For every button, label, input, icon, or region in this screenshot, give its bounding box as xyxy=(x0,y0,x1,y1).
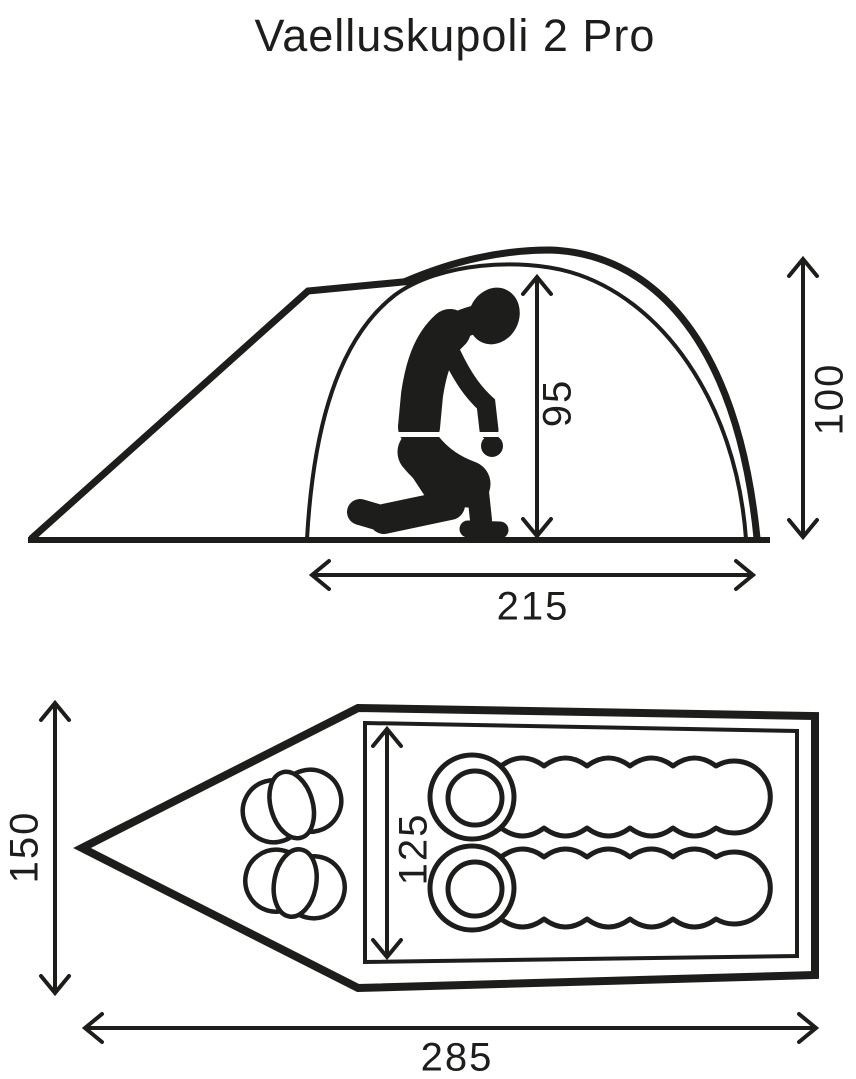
person-arm xyxy=(452,355,489,430)
person-hand xyxy=(481,435,503,457)
floorplan-outer-outline xyxy=(82,708,815,988)
sleeping-bag-opening xyxy=(448,771,502,825)
tent-side-view xyxy=(28,250,817,589)
person-front-foot xyxy=(468,529,500,530)
person-rear-foot xyxy=(360,512,384,519)
diagram-drawing xyxy=(0,0,856,1079)
sleeping-bag-top xyxy=(430,755,770,839)
outer-width-label: 150 xyxy=(3,811,48,884)
inner-width-label: 125 xyxy=(392,813,437,886)
inner-length-label: 215 xyxy=(497,585,570,630)
total-length-label: 285 xyxy=(421,1036,494,1079)
sleeping-bag-bottom xyxy=(430,846,770,930)
shoe-pair-top xyxy=(234,759,349,852)
inner-height-label: 95 xyxy=(536,379,581,428)
sleeping-bag-opening xyxy=(448,862,502,916)
tent-dimension-diagram: Vaelluskupoli 2 Pro xyxy=(0,0,856,1079)
kneeling-person-silhouette xyxy=(360,279,529,530)
shoe-pair-bottom xyxy=(240,841,350,925)
inner-tent-arc xyxy=(307,264,746,539)
person-front-shin xyxy=(478,492,481,520)
person-head xyxy=(459,279,529,353)
outer-height-label: 100 xyxy=(808,363,853,436)
